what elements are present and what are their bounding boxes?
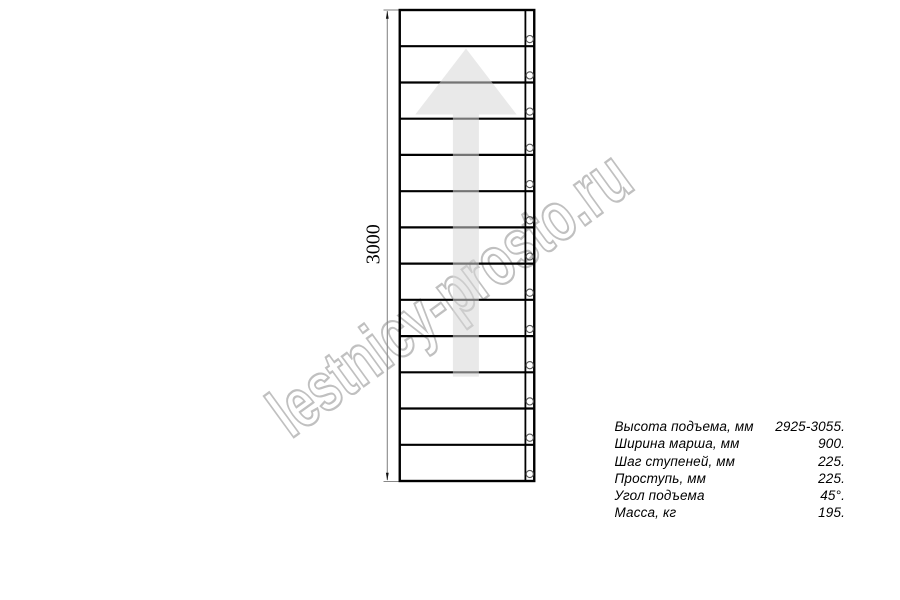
svg-text:lestnicy-prosto.ru: lestnicy-prosto.ru	[251, 134, 646, 453]
svg-text:3000: 3000	[363, 224, 385, 264]
